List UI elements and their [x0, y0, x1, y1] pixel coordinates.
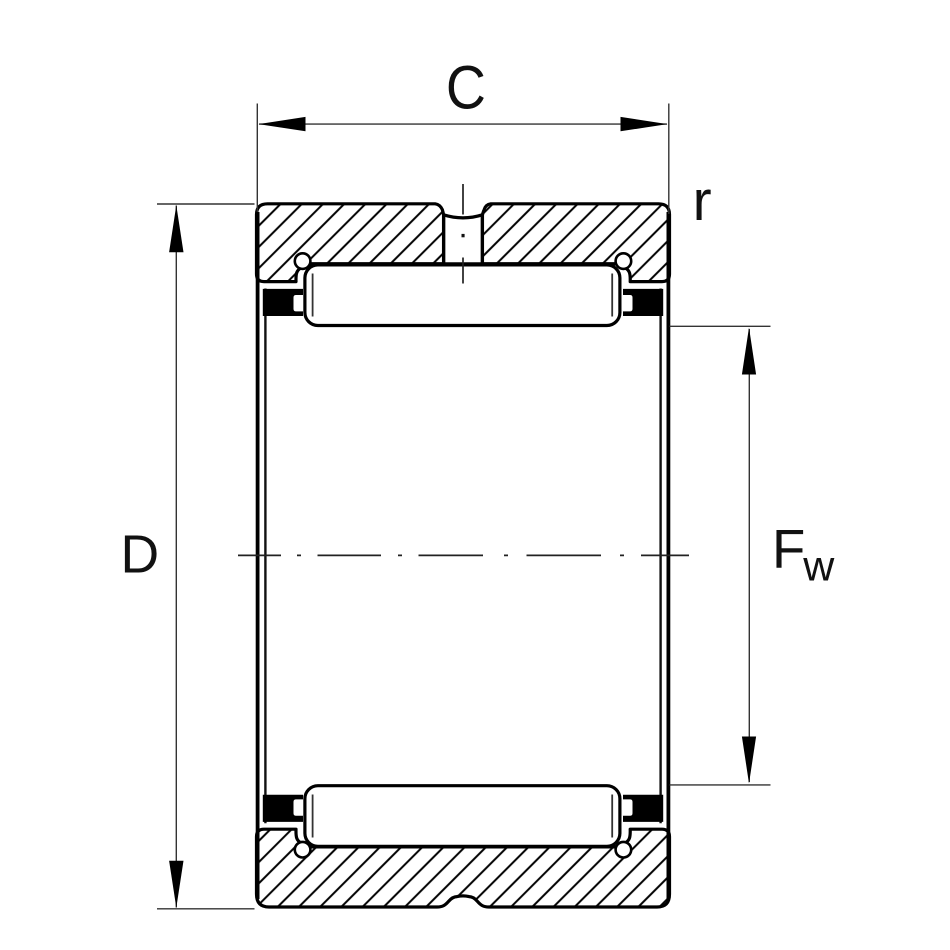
svg-text:C: C [446, 54, 486, 122]
svg-text:w: w [802, 543, 835, 591]
svg-text:D: D [121, 526, 160, 585]
svg-text:r: r [693, 169, 712, 233]
svg-text:F: F [772, 519, 805, 580]
